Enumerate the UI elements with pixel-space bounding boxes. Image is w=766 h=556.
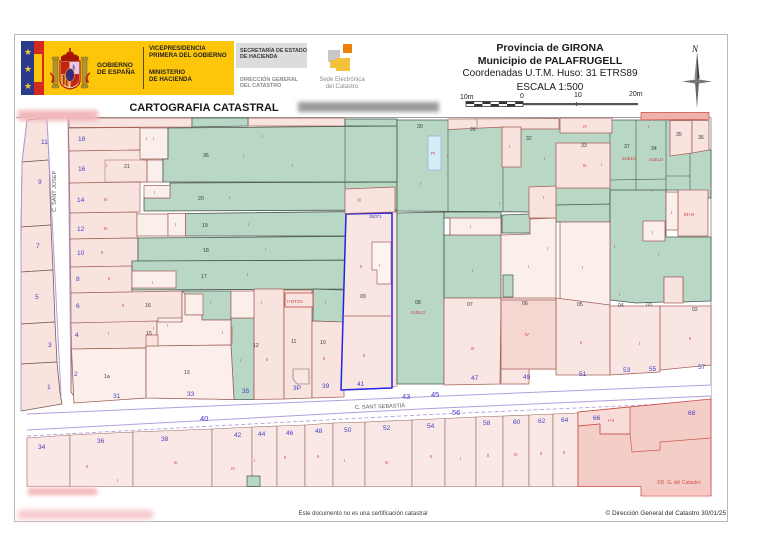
svg-text:18: 18 — [203, 248, 209, 254]
svg-text:30: 30 — [417, 124, 423, 130]
svg-text:I: I — [460, 456, 461, 461]
svg-text:I: I — [254, 458, 255, 463]
svg-text:I+DTZA: I+DTZA — [287, 299, 304, 304]
svg-text:39: 39 — [322, 383, 330, 390]
svg-text:IV: IV — [231, 466, 235, 471]
svg-text:N: N — [691, 44, 699, 54]
svg-text:II: II — [689, 336, 691, 341]
svg-text:10: 10 — [77, 250, 85, 257]
svg-text:06: 06 — [522, 301, 528, 307]
svg-text:C. SANT JOSEP: C. SANT JOSEP — [52, 171, 58, 212]
svg-text:II: II — [430, 454, 432, 459]
svg-text:55: 55 — [649, 366, 657, 373]
svg-text:I: I — [652, 230, 653, 235]
svg-text:14: 14 — [77, 197, 85, 204]
svg-text:I: I — [117, 478, 118, 483]
svg-text:35071: 35071 — [369, 214, 382, 219]
svg-text:PI: PI — [431, 151, 435, 156]
svg-text:II: II — [358, 198, 361, 204]
svg-text:31: 31 — [113, 393, 121, 400]
svg-text:I: I — [292, 163, 293, 168]
svg-text:0: 0 — [520, 93, 524, 100]
svg-text:02: 02 — [692, 307, 698, 313]
svg-text:42: 42 — [234, 432, 242, 439]
svg-text:33: 33 — [581, 143, 587, 149]
svg-text:II: II — [540, 451, 542, 456]
svg-text:33: 33 — [187, 391, 195, 398]
svg-text:66: 66 — [593, 415, 601, 422]
svg-text:7: 7 — [36, 243, 40, 250]
svg-text:I: I — [153, 326, 154, 331]
svg-text:48: 48 — [315, 428, 323, 435]
svg-text:I: I — [261, 300, 262, 305]
svg-text:20m: 20m — [629, 91, 643, 98]
svg-text:III: III — [514, 452, 518, 457]
svg-text:IV: IV — [583, 124, 587, 129]
svg-text:11: 11 — [41, 139, 48, 146]
svg-text:I: I — [344, 458, 345, 463]
svg-text:10: 10 — [574, 92, 582, 99]
svg-text:20: 20 — [198, 196, 204, 202]
svg-text:6: 6 — [76, 303, 80, 310]
svg-text:BH III: BH III — [684, 212, 694, 217]
svg-text:5: 5 — [35, 294, 39, 301]
svg-text:16: 16 — [78, 166, 86, 173]
svg-text:SUELO: SUELO — [622, 156, 637, 161]
svg-text:15: 15 — [146, 331, 152, 337]
svg-text:III: III — [583, 163, 587, 168]
svg-text:21: 21 — [124, 164, 130, 170]
svg-text:II: II — [487, 453, 489, 458]
svg-text:09: 09 — [360, 294, 366, 300]
svg-text:I: I — [175, 222, 176, 227]
svg-text:II: II — [363, 353, 365, 358]
svg-text:II: II — [284, 455, 286, 460]
svg-text:51: 51 — [579, 371, 587, 378]
svg-text:40: 40 — [200, 414, 208, 423]
svg-text:57: 57 — [698, 364, 706, 371]
svg-text:II: II — [108, 276, 110, 281]
svg-text:II: II — [86, 464, 88, 469]
svg-text:17: 17 — [201, 274, 207, 280]
svg-text:36: 36 — [97, 438, 105, 445]
svg-text:3P: 3P — [293, 385, 302, 392]
svg-text:SUELO: SUELO — [411, 310, 426, 315]
svg-text:04: 04 — [618, 303, 624, 309]
svg-text:19: 19 — [202, 223, 208, 229]
svg-text:12: 12 — [253, 343, 259, 349]
svg-text:I: I — [509, 144, 510, 149]
svg-text:10: 10 — [320, 340, 326, 346]
svg-text:3: 3 — [48, 342, 52, 349]
svg-text:45: 45 — [431, 390, 439, 399]
svg-text:52: 52 — [383, 425, 391, 432]
svg-text:36: 36 — [698, 135, 704, 141]
svg-text:13: 13 — [184, 370, 190, 376]
svg-text:34: 34 — [651, 146, 657, 152]
svg-text:12: 12 — [77, 226, 85, 233]
svg-text:©D. G. del Catastro: ©D. G. del Catastro — [657, 479, 701, 486]
svg-text:I: I — [152, 280, 153, 285]
svg-text:III: III — [471, 346, 475, 351]
svg-text:II: II — [580, 340, 582, 345]
svg-text:08: 08 — [415, 300, 421, 306]
svg-text:60: 60 — [513, 419, 521, 426]
svg-text:38: 38 — [161, 436, 169, 443]
svg-text:I: I — [639, 341, 640, 346]
svg-text:64: 64 — [561, 417, 569, 424]
svg-text:I+II: I+II — [608, 418, 614, 423]
svg-text:I: I — [379, 263, 380, 268]
svg-text:8: 8 — [76, 276, 80, 283]
svg-text:37: 37 — [624, 144, 630, 150]
svg-text:1: 1 — [47, 384, 51, 391]
svg-text:54: 54 — [427, 423, 435, 430]
svg-text:I: I — [106, 163, 107, 168]
svg-text:II: II — [266, 357, 268, 362]
svg-text:II: II — [101, 250, 103, 255]
svg-text:11: 11 — [291, 339, 296, 345]
svg-text:34: 34 — [38, 444, 46, 451]
svg-text:43: 43 — [402, 392, 410, 401]
svg-text:46: 46 — [286, 430, 294, 437]
svg-text:47: 47 — [471, 375, 479, 382]
svg-text:I: I — [619, 292, 620, 297]
svg-text:58: 58 — [483, 420, 491, 427]
svg-text:I: I — [528, 264, 529, 269]
svg-text:I: I — [543, 195, 544, 200]
svg-text:II: II — [122, 303, 124, 308]
svg-text:II: II — [323, 356, 325, 361]
svg-text:53: 53 — [623, 367, 631, 374]
svg-text:03: 03 — [646, 302, 652, 308]
svg-text:50: 50 — [344, 427, 352, 434]
svg-text:II: II — [360, 264, 362, 269]
svg-text:I: I — [262, 134, 263, 139]
svg-text:III: III — [385, 460, 389, 465]
svg-text:I: I — [671, 210, 672, 215]
svg-text:III: III — [174, 460, 178, 465]
svg-text:62: 62 — [538, 418, 546, 425]
svg-text:I: I — [154, 190, 155, 195]
svg-text:I: I — [108, 331, 109, 336]
svg-text:1a: 1a — [104, 374, 110, 380]
svg-text:2: 2 — [74, 371, 78, 378]
svg-text:I: I — [167, 323, 168, 328]
svg-text:26: 26 — [470, 127, 476, 133]
svg-text:10m: 10m — [460, 94, 474, 101]
svg-text:05: 05 — [577, 302, 583, 308]
svg-text:III: III — [104, 226, 108, 231]
svg-text:68: 68 — [688, 410, 696, 417]
svg-text:44: 44 — [258, 431, 266, 438]
svg-text:4: 4 — [75, 332, 79, 339]
svg-text:II: II — [317, 454, 319, 459]
svg-text:18: 18 — [78, 136, 86, 143]
svg-text:I: I — [222, 330, 223, 335]
svg-text:II: II — [563, 450, 565, 455]
svg-text:IV: IV — [525, 332, 529, 337]
svg-text:35: 35 — [242, 388, 250, 395]
svg-text:I: I — [153, 136, 154, 141]
svg-text:SUELO: SUELO — [649, 157, 664, 162]
svg-text:I: I — [146, 136, 147, 141]
svg-text:49: 49 — [523, 374, 531, 381]
svg-text:41: 41 — [357, 381, 365, 388]
svg-text:56: 56 — [452, 408, 460, 417]
svg-text:I: I — [470, 224, 471, 229]
svg-text:35: 35 — [676, 132, 682, 138]
svg-text:36: 36 — [203, 153, 209, 159]
svg-text:I: I — [582, 265, 583, 270]
svg-text:07: 07 — [467, 302, 473, 308]
svg-text:III: III — [104, 197, 108, 202]
svg-text:16: 16 — [145, 303, 151, 309]
svg-text:32: 32 — [526, 136, 532, 142]
svg-text:9: 9 — [38, 179, 42, 186]
